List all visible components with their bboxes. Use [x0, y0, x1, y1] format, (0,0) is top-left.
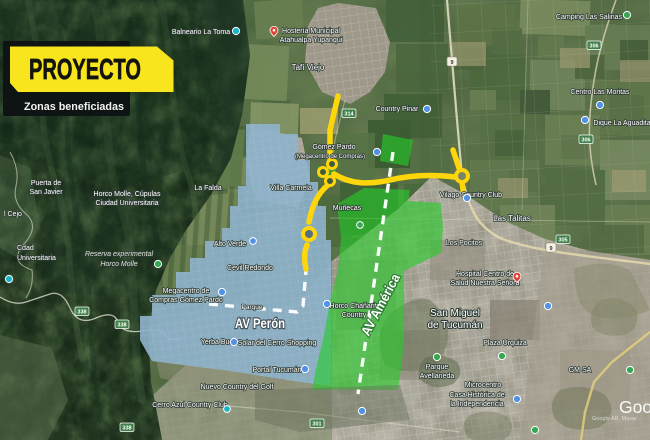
svg-text:Country Pinar: Country Pinar: [376, 106, 419, 113]
svg-text:9: 9: [450, 60, 453, 66]
svg-text:Cerro Azul Country Club: Cerro Azul Country Club: [152, 402, 228, 409]
svg-text:Balneario La Toma: Balneario La Toma: [172, 29, 230, 36]
svg-text:Salud Nuestra Señora: Salud Nuestra Señora: [451, 280, 520, 287]
svg-text:Horco Molle, Cúpulas: Horco Molle, Cúpulas: [94, 191, 161, 198]
svg-text:Goog: Goog: [619, 397, 650, 417]
svg-text:la Independencia: la Independencia: [450, 401, 503, 408]
svg-text:Parque: Parque: [426, 364, 449, 371]
svg-text:Casa Histórica de: Casa Histórica de: [449, 392, 504, 399]
svg-text:Country: Country: [342, 312, 367, 319]
svg-text:Hospital Centro de: Hospital Centro de: [456, 271, 514, 278]
svg-text:San Javier: San Javier: [29, 189, 63, 196]
svg-text:PROYECTO: PROYECTO: [29, 54, 141, 86]
svg-text:338: 338: [77, 310, 86, 316]
svg-text:Portal Tucumán: Portal Tucumán: [252, 367, 301, 374]
svg-text:Tafí Viejo: Tafí Viejo: [292, 63, 325, 72]
svg-text:de Tucumán: de Tucumán: [427, 320, 482, 331]
svg-text:Centro Las Moritas: Centro Las Moritas: [570, 89, 630, 96]
svg-text:Villa Carmela: Villa Carmela: [270, 185, 312, 192]
svg-text:(Megacentro de Compras): (Megacentro de Compras): [295, 154, 365, 160]
svg-text:Las Talitas: Las Talitas: [493, 214, 531, 223]
svg-text:Avellaneda: Avellaneda: [420, 373, 455, 380]
svg-text:Parque: Parque: [242, 304, 263, 311]
svg-text:Horco Molle: Horco Molle: [100, 261, 137, 268]
svg-text:306: 306: [581, 138, 590, 144]
svg-text:Google AR, Maxar: Google AR, Maxar: [592, 416, 637, 422]
svg-text:338: 338: [122, 426, 131, 432]
svg-text:Reserva experimental: Reserva experimental: [85, 251, 154, 258]
svg-text:Microcentro: Microcentro: [465, 382, 502, 389]
svg-text:338: 338: [117, 323, 126, 329]
svg-text:Zonas beneficiadas: Zonas beneficiadas: [24, 101, 124, 113]
svg-text:Muñecas: Muñecas: [333, 205, 362, 212]
svg-text:Solar del Cerro Shopping: Solar del Cerro Shopping: [238, 340, 317, 347]
svg-text:Puerta de: Puerta de: [31, 180, 61, 187]
svg-text:314: 314: [344, 112, 354, 118]
svg-text:Los Pocitos: Los Pocitos: [446, 240, 483, 247]
svg-text:306: 306: [589, 44, 598, 50]
svg-text:Gómez Pardo: Gómez Pardo: [312, 144, 355, 151]
svg-text:GM SA: GM SA: [569, 367, 592, 374]
svg-text:Ciudad Universitaria: Ciudad Universitaria: [95, 200, 158, 207]
svg-text:l Cejo: l Cejo: [4, 211, 22, 218]
svg-text:Universitaria: Universitaria: [17, 255, 56, 262]
svg-text:Dique La Aguadita: Dique La Aguadita: [593, 120, 650, 127]
svg-text:305: 305: [558, 238, 567, 244]
svg-text:Alto Verde: Alto Verde: [214, 241, 246, 248]
svg-text:San Miguel: San Miguel: [430, 308, 480, 319]
svg-text:Plaza Urquiza: Plaza Urquiza: [483, 340, 527, 347]
svg-text:AV Perón: AV Perón: [235, 316, 285, 331]
svg-text:Megacentro de: Megacentro de: [163, 288, 210, 295]
svg-text:Camping Las Salinas: Camping Las Salinas: [556, 14, 623, 21]
svg-text:Compras Gómez Pardo: Compras Gómez Pardo: [149, 297, 223, 304]
svg-text:301: 301: [312, 422, 321, 428]
svg-text:La Falda: La Falda: [194, 185, 221, 192]
svg-text:9: 9: [549, 246, 552, 252]
svg-text:Cdad: Cdad: [17, 245, 34, 252]
svg-text:Atahualpa Yupanqui: Atahualpa Yupanqui: [280, 37, 343, 44]
svg-text:Cevil Redondo: Cevil Redondo: [227, 265, 273, 272]
svg-text:Nuevo Country del Golf: Nuevo Country del Golf: [201, 384, 274, 391]
svg-text:Hostería Municipal: Hostería Municipal: [282, 28, 340, 35]
